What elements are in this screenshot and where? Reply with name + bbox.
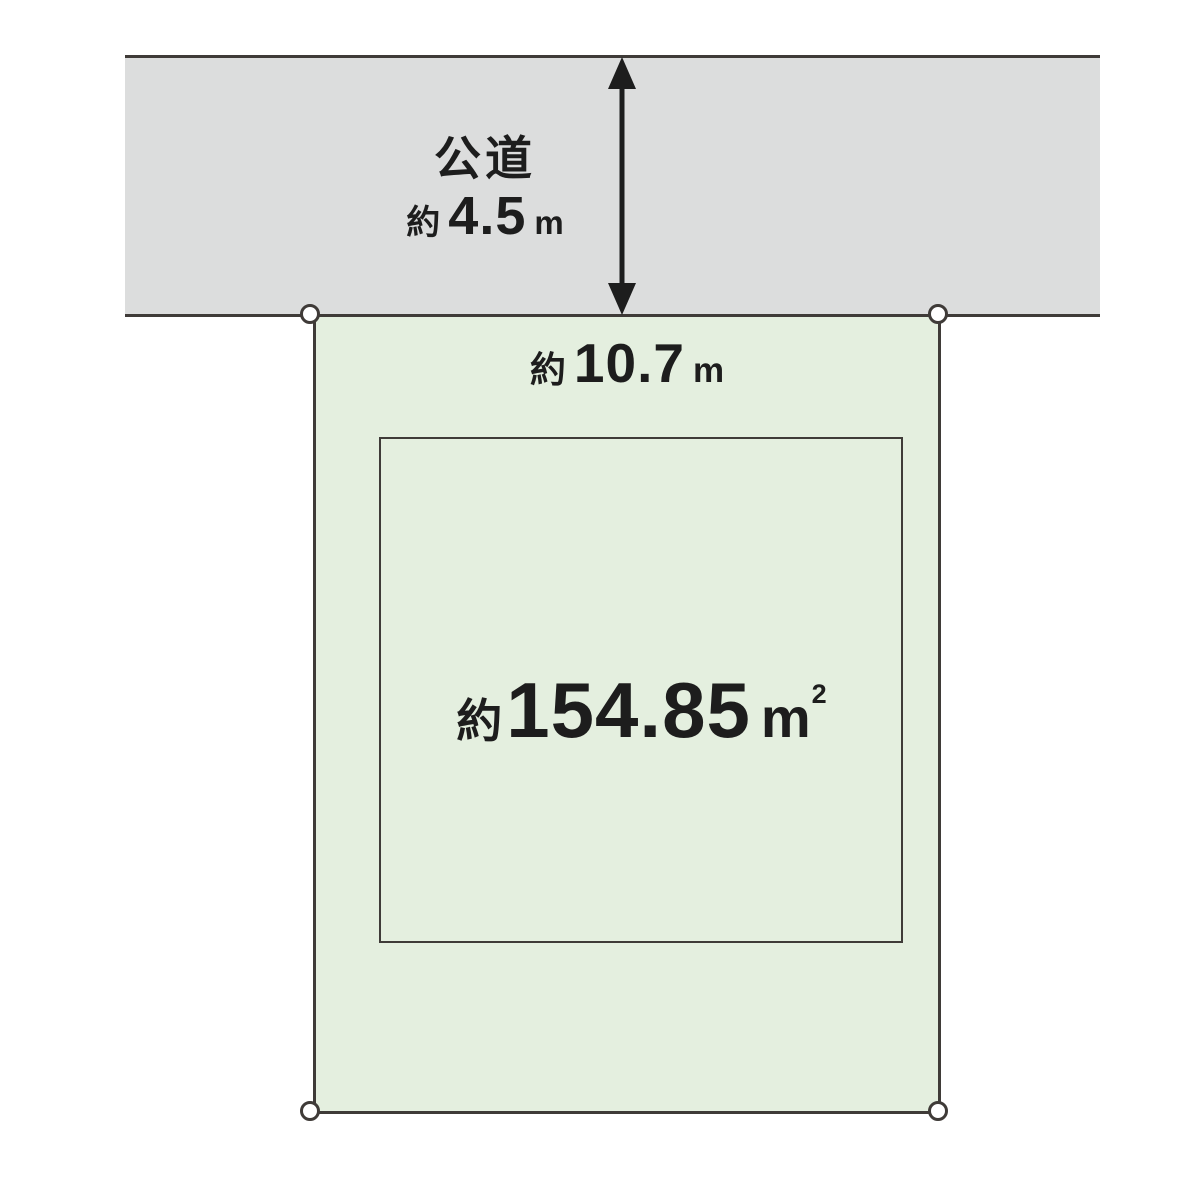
area-annotation: 約 154.85 m 2 bbox=[379, 668, 903, 754]
road-width-prefix: 約 bbox=[406, 204, 440, 243]
area-unit: m bbox=[761, 687, 811, 749]
land-plot-diagram: 公道 約 4.5 m 約 10.7 m 約 154.85 m 2 bbox=[0, 0, 1200, 1200]
frontage-dimension: 約 10.7 m bbox=[530, 332, 724, 395]
area-value: 154.85 bbox=[506, 668, 751, 754]
road-label: 公道 bbox=[434, 133, 536, 185]
corner-marker-top-right bbox=[928, 304, 948, 324]
frontage-unit: m bbox=[693, 351, 724, 391]
road-annotation: 公道 約 4.5 m bbox=[330, 133, 640, 247]
frontage-prefix: 約 bbox=[530, 349, 566, 390]
road-width-dimension: 約 4.5 m bbox=[406, 185, 563, 247]
frontage-value: 10.7 bbox=[574, 332, 685, 395]
corner-marker-top-left bbox=[300, 304, 320, 324]
area-unit-superscript: 2 bbox=[812, 680, 827, 710]
area-prefix: 約 bbox=[456, 696, 502, 747]
frontage-annotation: 約 10.7 m bbox=[313, 332, 941, 395]
corner-marker-bottom-left bbox=[300, 1101, 320, 1121]
road-width-unit: m bbox=[534, 204, 563, 242]
road-width-value: 4.5 bbox=[448, 185, 526, 247]
corner-marker-bottom-right bbox=[928, 1101, 948, 1121]
